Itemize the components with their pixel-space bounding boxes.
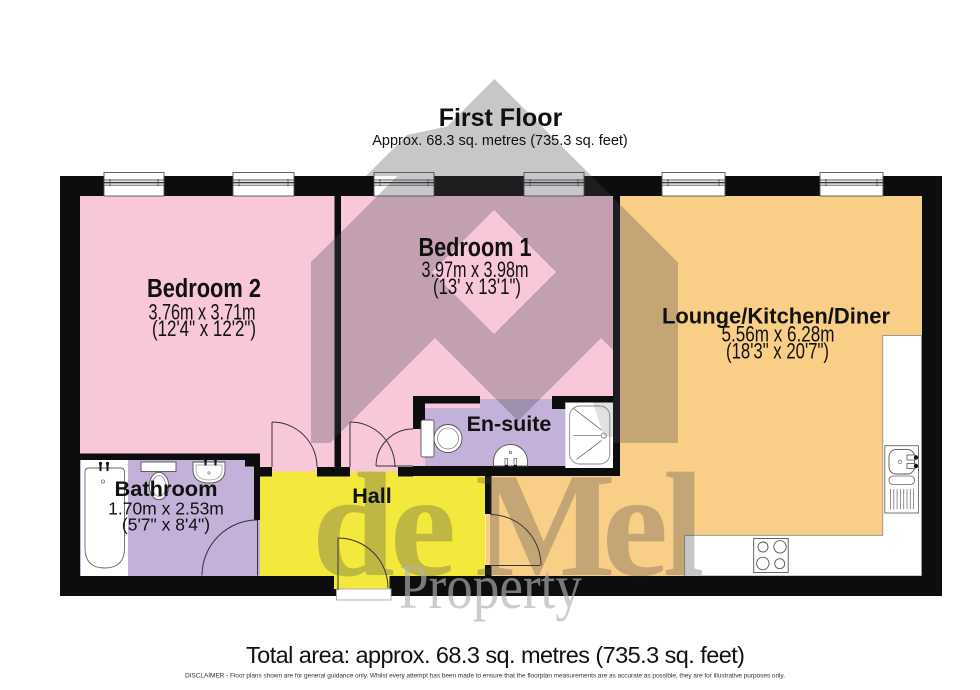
svg-text:Property: Property [399,551,582,622]
svg-text:Hall: Hall [352,484,391,508]
svg-text:d: d [312,443,395,608]
svg-text:l: l [663,443,704,608]
svg-text:(18'3" x 20'7"): (18'3" x 20'7") [726,339,829,364]
svg-text:En-suite: En-suite [467,412,552,436]
svg-text:DISCLAIMER - Floor plans show: DISCLAIMER - Floor plans shown are for g… [185,673,785,680]
svg-text:(12'4" x 12'2"): (12'4" x 12'2") [152,316,256,341]
svg-text:(5'7" x 8'4"): (5'7" x 8'4") [122,515,210,535]
svg-text:e: e [602,443,668,608]
svg-text:First Floor: First Floor [439,104,563,132]
svg-text:(13' x 13'1"): (13' x 13'1") [433,274,521,299]
svg-text:Total area: approx. 68.3 sq. m: Total area: approx. 68.3 sq. metres (735… [246,642,745,668]
svg-text:Approx. 68.3 sq. metres (735.3: Approx. 68.3 sq. metres (735.3 sq. feet) [372,133,628,149]
